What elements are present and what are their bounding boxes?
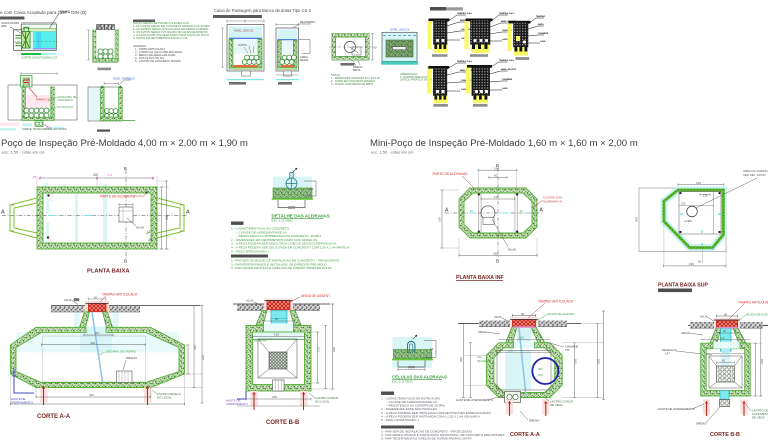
svg-text:60: 60 [521,312,524,316]
svg-text:PLANTA BAIXA SUP: PLANTA BAIXA SUP [658,283,708,289]
svg-text:NIVEL TERRENO: NIVEL TERRENO [113,77,135,81]
svg-text:Poço de Inspeção Pré-Moldado: Poço de Inspeção Pré-Moldado 4,00 m × 2,… [1,138,248,149]
svg-text:60: 60 [275,317,279,321]
svg-text:DEGRAU DE FERRO: DEGRAU DE FERRO [106,350,137,354]
svg-text:DUTOS PVC: DUTOS PVC [58,105,74,109]
svg-text:CORTE A-A: CORTE A-A [37,414,71,420]
svg-text:TAMPAO FoFo: TAMPAO FoFo [499,59,515,62]
svg-text:60: 60 [723,329,727,333]
svg-text:5 – PESO APROXIMADO: t: 5 – PESO APROXIMADO: t [231,249,269,253]
svg-text:60x60: 60x60 [508,248,517,252]
svg-text:AJUS.: AJUS. [64,298,72,302]
svg-text:LAJE: LAJE [502,38,508,41]
svg-text:160: 160 [508,349,513,353]
svg-text:DUTOS: DUTOS [238,43,247,47]
svg-text:CHAMINE: CHAMINE [502,78,513,81]
svg-text:60x60: 60x60 [136,226,145,230]
svg-text:ARGA.: ARGA. [478,330,487,334]
svg-text:300: 300 [538,367,543,371]
svg-text:ESC. 1:10 S/ESC: ESC. 1:10 S/ESC [272,219,294,223]
svg-text:TAMPAO: TAMPAO [536,15,545,18]
svg-text:200: 200 [459,357,463,362]
svg-text:160: 160 [573,359,577,364]
svg-text:130: 130 [703,193,708,197]
svg-text:NO LOCAL: NO LOCAL [157,396,172,400]
svg-text:PARTE DE ALDRAVAS: PARTE DE ALDRAVAS [433,172,469,176]
svg-text:ANEL: ANEL [538,23,545,26]
svg-text:160: 160 [494,167,499,171]
svg-text:150: 150 [538,373,543,377]
svg-text:RODA DE ACESSO: RODA DE ACESSO [747,312,768,316]
svg-text:160: 160 [519,336,524,340]
svg-text:TAMPAO FoFo: TAMPAO FoFo [457,60,473,63]
svg-text:B: B [124,166,127,171]
svg-text:B: B [124,259,127,264]
svg-text:CORTE B-B: CORTE B-B [266,420,300,426]
svg-text:A: A [1,210,5,216]
svg-text:170: 170 [317,347,321,352]
svg-text:15: 15 [430,347,434,351]
svg-text:110: 110 [95,331,100,335]
svg-text:AREIA DE ASSENT.: AREIA DE ASSENT. [301,294,331,298]
svg-text:NIVEL LENCOL: NIVEL LENCOL [234,29,254,33]
svg-text:230: 230 [272,395,277,399]
svg-text:ø 600: ø 600 [685,219,693,223]
svg-text:60: 60 [94,295,98,299]
svg-text:RODA DE ACESSO: RODA DE ACESSO [548,312,575,316]
svg-text:220: 220 [201,355,205,360]
svg-text:CHAMINE: CHAMINE [538,32,549,35]
svg-text:5 – PESO APROXIMADO: t: 5 – PESO APROXIMADO: t [381,418,419,422]
svg-text:160: 160 [696,181,701,185]
svg-text:TAMPAO ARTICULADO: TAMPAO ARTICULADO [538,299,574,303]
svg-text:130: 130 [681,202,686,206]
svg-text:AJUS.: AJUS. [700,314,708,318]
svg-text:DE VEDA: DE VEDA [550,403,563,407]
svg-text:ATERRAMENTO: ATERRAMENTO [226,402,249,406]
svg-text:Mini-Poço de Inspeção Pré-Mold: Mini-Poço de Inspeção Pré-Moldado 1,60 m… [370,138,638,149]
svg-text:CORTE LONGITUDINAL CX: CORTE LONGITUDINAL CX [21,55,57,59]
svg-text:15: 15 [33,175,37,179]
svg-text:DRENO: DRENO [696,421,707,425]
svg-text:e com Caixa Acoplada para GDF: e com Caixa Acoplada para GDF - DIN (B) [0,10,87,15]
svg-text:REATERRO: REATERRO [300,20,316,24]
svg-text:220: 220 [332,347,336,352]
svg-text:ARGA.: ARGA. [681,331,690,335]
svg-text:60: 60 [494,174,498,178]
svg-text:MEDIA: MEDIA [300,58,308,62]
svg-text:3– PAR-TECER-MANTA E GRELHA DE: 3– PAR-TECER-MANTA E GRELHA DE FORMA PAD… [381,437,473,441]
svg-text:120: 120 [491,361,495,366]
svg-text:NIVEL LENCOL: NIVEL LENCOL [390,28,410,32]
svg-text:ESC. 1:10 S/ESC: ESC. 1:10 S/ESC [392,379,413,383]
svg-text:190: 190 [193,345,197,350]
svg-text:PARTE DE ALDRAVAS: PARTE DE ALDRAVAS [100,195,136,199]
svg-text:LAJE: LAJE [502,87,508,90]
svg-text:CORTE A-A: CORTE A-A [510,432,540,438]
svg-text:HASTE DE ATERRAMENTO: HASTE DE ATERRAMENTO [658,407,696,411]
svg-text:ANEL AJUSTE: ANEL AJUSTE [501,68,517,71]
svg-text:NO LOCAL: NO LOCAL [315,400,330,404]
svg-text:60: 60 [374,46,378,50]
svg-text:BRITA: BRITA [353,68,361,72]
svg-text:DRENO: DRENO [529,418,540,422]
svg-text:ALDRAVAS 4°: ALDRAVAS 4° [543,199,563,203]
svg-text:TAMPAO ARTICULADO: TAMPAO ARTICULADO [738,300,768,304]
svg-text:226: 226 [493,251,498,255]
svg-text:DE RAIOS: DE RAIOS [477,359,491,363]
svg-text:PLANTA BAIXA: PLANTA BAIXA [87,269,130,275]
svg-text:CORTE B-B: CORTE B-B [710,432,740,438]
svg-text:3 - FUNDO COM DRENO DE BRITA: 3 - FUNDO COM DRENO DE BRITA [331,82,374,86]
svg-text:esc. 1:50 - cotas em cm: esc. 1:50 - cotas em cm [2,150,45,155]
svg-text:B: B [496,259,499,264]
svg-text:60: 60 [722,359,726,363]
svg-text:200: 200 [634,217,638,222]
svg-text:60: 60 [698,259,702,263]
svg-text:CONCRETO: CONCRETO [58,98,73,102]
svg-text:DRENO: DRENO [126,356,138,360]
svg-text:A: A [186,210,190,216]
svg-text:LAJE: LAJE [540,40,546,43]
svg-text:160: 160 [494,195,499,199]
svg-text:220: 220 [596,359,600,364]
svg-text:5- COTAS EM CENTIMETROS ESCALA: 5- COTAS EM CENTIMETROS ESCALA 1:25 [133,36,188,40]
svg-text:400: 400 [90,341,95,345]
svg-text:440: 440 [89,393,94,397]
svg-text:5 - LASTRO DE CONCRETO MAGRO: 5 - LASTRO DE CONCRETO MAGRO [135,59,181,63]
svg-text:15: 15 [147,230,151,234]
svg-text:200: 200 [165,214,169,220]
svg-text:15: 15 [310,187,314,191]
svg-text:TIP: TIP [565,348,570,352]
svg-text:TAMPA CX: TAMPA CX [36,98,50,102]
svg-text:3– PAR-TECER-MANTELA E GRELADA: 3– PAR-TECER-MANTELA E GRELADA DE FORMAT… [231,266,332,270]
svg-text:60: 60 [724,312,727,316]
svg-text:VER DET. APOIO: VER DET. APOIO [743,173,767,177]
svg-text:230: 230 [689,262,694,266]
svg-text:Caixa de Passagem para Banco d: Caixa de Passagem para Banco de dutos Ti… [214,8,312,13]
svg-text:AJUS.: AJUS. [246,299,254,303]
svg-text:TAMPAO ARTICULADO: TAMPAO ARTICULADO [102,292,138,296]
svg-text:190: 190 [760,359,764,364]
svg-text:CELULAS DAS ALDRAVAS: CELULAS DAS ALDRAVAS [392,375,447,380]
svg-text:160: 160 [274,333,279,337]
svg-text:GDF: GDF [1,24,7,28]
svg-text:AJUS.: AJUS. [494,315,502,319]
svg-text:TAMPAO FoFo: TAMPAO FoFo [457,12,473,15]
svg-text:DE VEDA: DE VEDA [752,416,765,420]
svg-text:147: 147 [665,351,670,355]
svg-text:TAMPAO FoFo: TAMPAO FoFo [499,12,515,15]
svg-text:TAMPA: TAMPA [60,10,71,14]
svg-text:160: 160 [720,336,725,340]
svg-text:esc. 1:50 - cotas em cm: esc. 1:50 - cotas em cm [371,150,414,155]
svg-text:CORTE TRANSVERSAL DA CAIXA: CORTE TRANSVERSAL DA CAIXA [22,127,67,131]
svg-text:15: 15 [149,237,153,241]
svg-text:400: 400 [93,173,99,177]
svg-text:1.5: 1.5 [108,173,112,177]
svg-text:160: 160 [438,217,442,222]
